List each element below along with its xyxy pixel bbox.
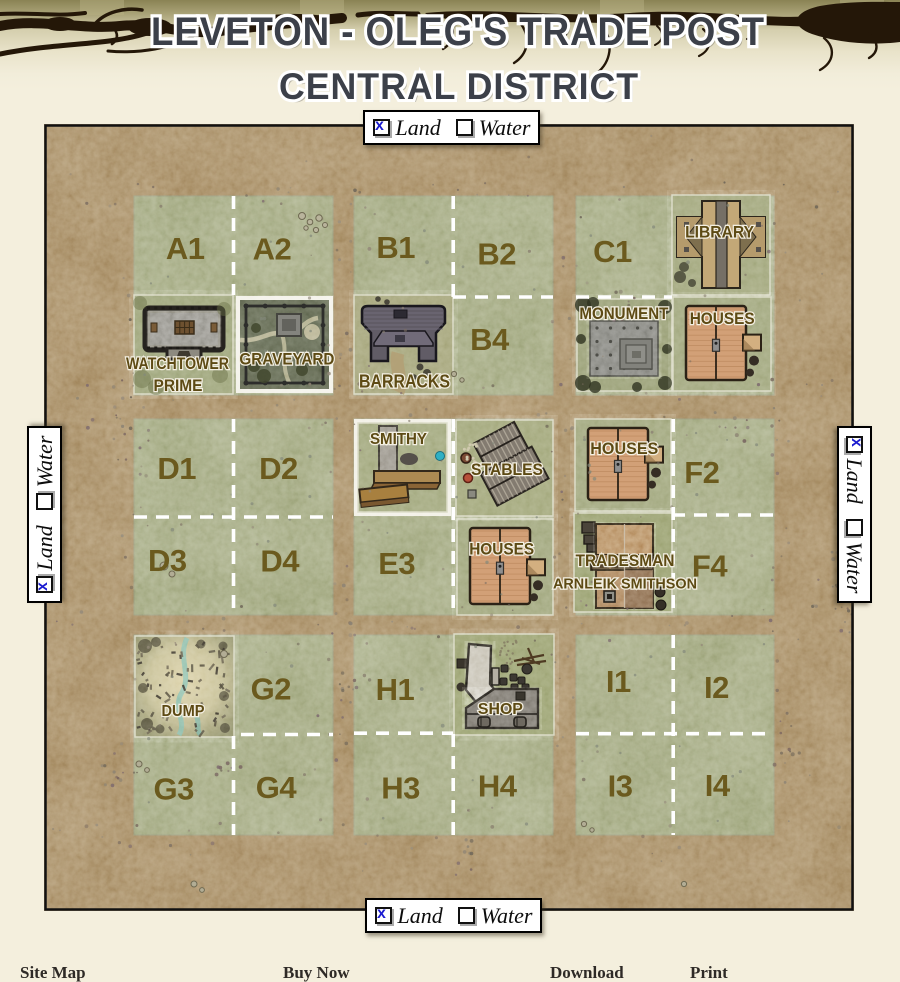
svg-text:SHOP: SHOP <box>478 701 523 718</box>
svg-text:GRAVEYARD: GRAVEYARD <box>239 350 334 369</box>
svg-text:F4: F4 <box>692 548 728 583</box>
svg-text:LEVETON - OLEG'S TRADE POST: LEVETON - OLEG'S TRADE POST <box>151 10 765 54</box>
svg-text:G4: G4 <box>256 770 298 805</box>
svg-text:A2: A2 <box>253 232 292 267</box>
svg-text:STABLES: STABLES <box>471 460 543 479</box>
svg-text:HOUSES: HOUSES <box>690 309 755 328</box>
svg-text:HOUSES: HOUSES <box>590 439 658 458</box>
svg-text:D4: D4 <box>260 543 300 578</box>
svg-text:I4: I4 <box>705 768 731 803</box>
svg-text:DUMP: DUMP <box>162 703 205 720</box>
svg-text:PRIME: PRIME <box>154 376 203 395</box>
svg-text:ARNLEIK SMITHSON: ARNLEIK SMITHSON <box>553 575 697 592</box>
svg-text:B4: B4 <box>470 322 510 357</box>
svg-text:H3: H3 <box>381 771 420 806</box>
svg-text:F2: F2 <box>684 455 719 490</box>
svg-text:D2: D2 <box>259 451 298 486</box>
svg-text:TRADESMAN: TRADESMAN <box>576 551 675 570</box>
svg-text:I1: I1 <box>606 664 631 699</box>
svg-text:G2: G2 <box>251 672 291 707</box>
svg-text:HOUSES: HOUSES <box>469 540 534 559</box>
svg-text:SMITHY: SMITHY <box>370 431 427 448</box>
svg-text:CENTRAL DISTRICT: CENTRAL DISTRICT <box>279 66 639 107</box>
svg-text:D1: D1 <box>157 451 196 486</box>
svg-text:C1: C1 <box>593 234 632 269</box>
svg-text:B1: B1 <box>376 230 415 265</box>
svg-text:H1: H1 <box>376 672 415 707</box>
svg-text:H4: H4 <box>478 769 518 804</box>
svg-text:I2: I2 <box>704 670 729 705</box>
svg-text:WATCHTOWER: WATCHTOWER <box>126 354 229 373</box>
svg-text:G3: G3 <box>154 772 195 807</box>
svg-text:E3: E3 <box>378 546 415 581</box>
svg-text:MONUMENT: MONUMENT <box>579 304 669 323</box>
svg-text:B2: B2 <box>477 237 516 272</box>
svg-text:LIBRARY: LIBRARY <box>685 223 755 242</box>
svg-text:I3: I3 <box>608 769 633 804</box>
svg-text:D3: D3 <box>148 543 187 578</box>
svg-text:BARRACKS: BARRACKS <box>359 372 450 392</box>
svg-text:A1: A1 <box>166 231 205 266</box>
